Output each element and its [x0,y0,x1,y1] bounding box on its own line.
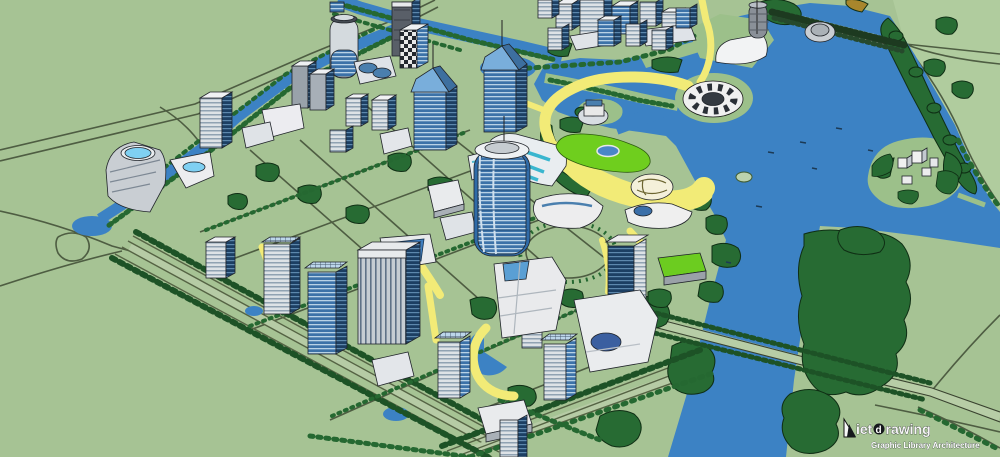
svg-text:d: d [876,425,882,436]
svg-text:iet: iet [856,421,873,437]
svg-text:Graphic Library Architecture: Graphic Library Architecture [871,441,980,450]
svg-text:rawing: rawing [886,421,931,437]
